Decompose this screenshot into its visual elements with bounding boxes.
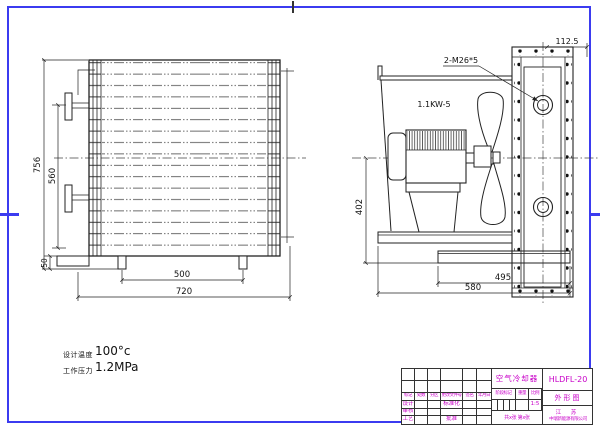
- bolt-row-right: [566, 58, 572, 290]
- model-number: HLDFL-20: [543, 369, 593, 391]
- role-check: 审核: [402, 409, 415, 416]
- dim-panel-depth: 112.5: [556, 37, 579, 46]
- rev-col-date: 年月日: [477, 393, 492, 401]
- rev-col-docno: 更改文件号: [441, 393, 463, 401]
- weight-label: 重量: [516, 389, 529, 400]
- dim-foot-height: 50: [40, 258, 49, 268]
- dim-base-plate: 495: [495, 273, 511, 283]
- title-block: 标记 处数 分区 更改文件号 签名 年月日 设计 标准化 审核 工艺 批准 空气…: [401, 368, 593, 425]
- role-approve: 批准: [441, 416, 463, 424]
- rev-col-mark: 标记: [402, 393, 415, 401]
- sheet-name: 外形图: [543, 391, 593, 406]
- base-plate: [438, 251, 570, 263]
- working-pressure-label: 工作压力: [63, 366, 93, 376]
- weight-value: [516, 400, 529, 411]
- company-block: 江 苏 中瑞新能源有限公司: [543, 406, 593, 424]
- motor-label: 1.1KW-5: [417, 100, 450, 109]
- company-region: 江 苏: [556, 408, 581, 416]
- rev-col-zone: 分区: [428, 393, 441, 401]
- bolt-row-top: [513, 50, 571, 56]
- fin-tube-bundle: [102, 62, 266, 254]
- design-temp-value: 100°c: [95, 344, 131, 358]
- dim-assembly-height: 402: [355, 199, 365, 215]
- role-standard: 标准化: [441, 401, 463, 409]
- drawing-sheet: 756 560 50 500 720: [0, 0, 600, 431]
- title-block-right: HLDFL-20 外形图 江 苏 中瑞新能源有限公司: [542, 369, 592, 424]
- fan-blade-upper: [478, 92, 504, 152]
- dim-feet-span: 500: [174, 270, 190, 280]
- dim-overall-height: 756: [33, 157, 43, 173]
- fan-motor: [388, 130, 500, 183]
- role-design: 设计: [402, 401, 415, 409]
- fan-blade-lower: [481, 164, 506, 225]
- stage-label: 阶段标记: [492, 389, 516, 400]
- coil-side-panel: [512, 47, 573, 297]
- title-block-middle: 空气冷却器 阶段标记 重量 比例 1:5 共x张 第x张: [492, 369, 542, 424]
- scale-label: 比例: [529, 389, 542, 400]
- dim-overall-depth: 580: [465, 283, 481, 293]
- base-channel: [378, 232, 512, 243]
- ports-label: 2-M26*5: [444, 56, 478, 65]
- product-name: 空气冷却器: [492, 369, 542, 389]
- bolt-row-left: [514, 58, 520, 290]
- motor-pedestal: [406, 183, 460, 232]
- rev-col-count: 处数: [415, 393, 428, 401]
- working-pressure-value: 1.2MPa: [95, 360, 139, 374]
- dim-overall-width: 720: [176, 287, 192, 297]
- dim-port-spacing: 560: [48, 168, 58, 184]
- left-tube-sheet: [89, 60, 101, 256]
- outlet-flange: [65, 185, 89, 212]
- role-process: 工艺: [402, 416, 415, 424]
- front-view-air-cooler: [54, 60, 306, 269]
- scale-value: 1:5: [529, 400, 542, 411]
- side-view-fan-unit: [352, 42, 598, 303]
- rev-col-sign: 签名: [463, 393, 477, 401]
- bolt-row-bottom: [513, 290, 571, 296]
- rear-header-line: [281, 68, 294, 243]
- company-name: 中瑞新能源有限公司: [549, 416, 587, 422]
- design-temp-label: 设计温度: [63, 350, 93, 360]
- sheet-count: 共x张 第x张: [492, 411, 542, 424]
- bottom-header-stub: [57, 256, 89, 266]
- left-foot: [118, 256, 126, 269]
- title-block-revision-grid: 标记 处数 分区 更改文件号 签名 年月日 设计 标准化 审核 工艺 批准: [402, 369, 492, 424]
- right-foot: [239, 256, 247, 269]
- right-tube-sheet: [268, 60, 280, 256]
